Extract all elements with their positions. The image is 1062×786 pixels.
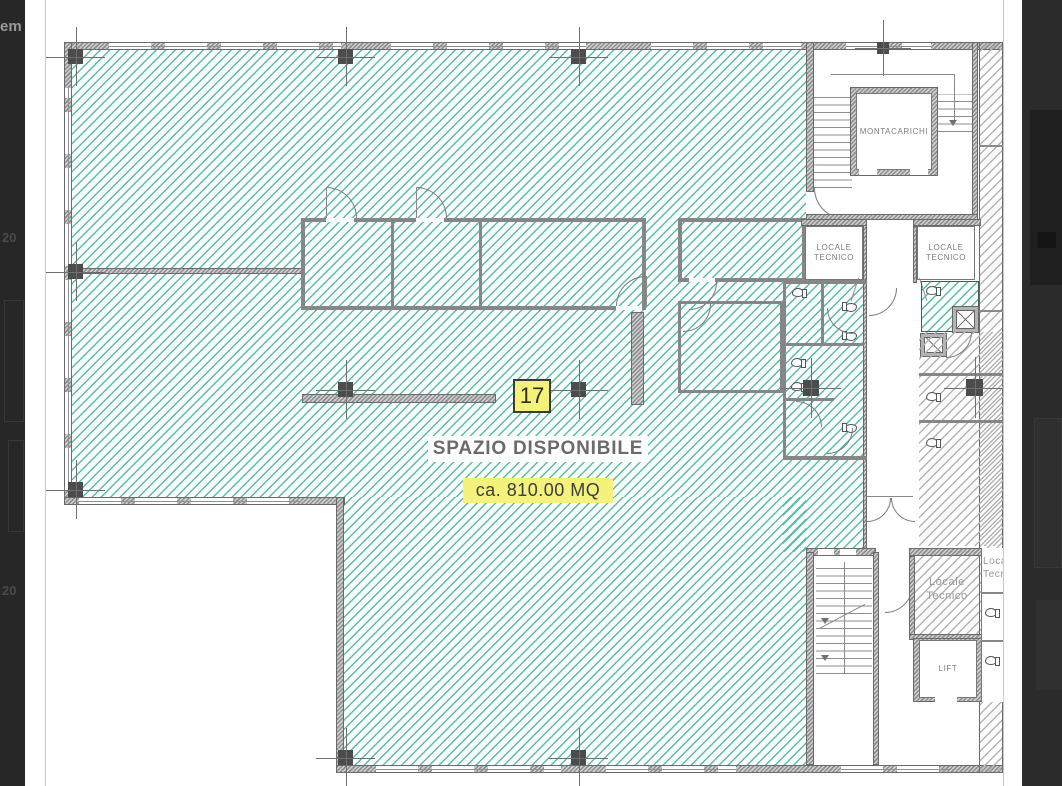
column-marker <box>803 380 819 396</box>
lift-door-gap <box>935 696 957 702</box>
wall <box>391 222 394 308</box>
available-area-hatch <box>344 497 806 765</box>
column-marker <box>571 750 586 765</box>
wall <box>873 552 879 765</box>
door-opening <box>818 549 834 555</box>
window-band <box>391 43 586 49</box>
shaft-icon <box>953 307 978 332</box>
window-band <box>841 766 951 772</box>
room-label-locale-tecnico-lower: Locale Tecnico <box>915 576 979 604</box>
door-opening <box>616 306 642 310</box>
dimmed-page-right[interactable] <box>1022 0 1062 786</box>
wall <box>336 497 344 773</box>
toilet-icon <box>791 358 803 367</box>
wall-joint <box>979 310 1003 312</box>
wall <box>909 548 983 556</box>
wall <box>786 398 834 401</box>
stair-guide-line <box>831 74 955 75</box>
stair-treads <box>814 94 852 188</box>
window-band <box>79 498 299 504</box>
stair-arrow-icon <box>821 618 829 624</box>
window-band <box>376 766 561 772</box>
unit-number-badge: 17 <box>513 379 551 413</box>
background-number-fragment: 20 <box>2 583 16 598</box>
background-image-ghost <box>1030 110 1062 285</box>
wall <box>301 218 305 310</box>
column-marker <box>877 42 889 54</box>
column-marker <box>571 49 586 64</box>
wall <box>981 592 1003 594</box>
room-label-locale-tecnico: LOCALE TECNICO <box>918 243 974 263</box>
wall <box>783 456 867 460</box>
window-band <box>65 88 71 490</box>
door-leaf <box>326 187 327 218</box>
stair-arrow-icon <box>949 120 957 126</box>
background-plan-ghost <box>4 300 24 422</box>
stair-arrow-icon <box>821 655 829 661</box>
room-label-montacarichi: MONTACARICHI <box>860 127 928 137</box>
door-arc <box>867 498 891 522</box>
wall <box>786 343 864 346</box>
column-marker <box>571 382 586 397</box>
window-band <box>109 43 341 49</box>
door-arc <box>869 288 897 316</box>
wall <box>806 42 814 192</box>
wall <box>678 218 682 282</box>
column-marker <box>338 49 353 64</box>
background-badge-ghost <box>1038 232 1056 248</box>
wall <box>479 222 482 308</box>
elevator-door-gap <box>910 169 928 175</box>
column-marker <box>966 379 983 396</box>
door-opening <box>326 218 354 222</box>
door-leaf <box>416 187 417 218</box>
toilet-icon <box>985 608 997 617</box>
wall <box>801 219 867 226</box>
window-band <box>651 43 801 49</box>
wall <box>919 420 1003 423</box>
room-montacarichi: MONTACARICHI <box>856 93 932 170</box>
wall-pier <box>631 312 644 405</box>
column-marker <box>68 264 83 279</box>
wall <box>919 373 1003 376</box>
dimmed-page-left[interactable]: em 20 20 <box>0 0 25 786</box>
toilet-icon <box>791 382 803 391</box>
wall <box>679 218 806 222</box>
column-marker <box>68 482 83 497</box>
room-locale-tecnico-right: LOCALE TECNICO <box>917 226 975 280</box>
door-leaf <box>646 276 647 306</box>
room-label-locale-tecnico: LOCALE TECNICO <box>806 243 862 263</box>
door-opening <box>840 549 856 555</box>
stair-treads <box>937 94 977 132</box>
wall <box>301 306 646 310</box>
wall-joint <box>979 145 1003 147</box>
toilet-icon <box>985 656 997 665</box>
column-marker <box>338 750 353 765</box>
background-panel-ghost <box>1034 418 1062 568</box>
door-arc <box>891 498 915 522</box>
wall <box>783 280 867 284</box>
column-marker <box>68 49 83 64</box>
background-plan-ghost <box>8 440 24 532</box>
wall <box>981 640 1003 642</box>
door-threshold <box>867 496 913 497</box>
wall <box>806 552 814 765</box>
stair-guide-line <box>954 74 955 121</box>
wall <box>821 283 824 343</box>
background-text-fragment: em <box>0 18 22 35</box>
stair-divider <box>844 562 845 674</box>
toilet-icon <box>792 288 804 297</box>
column-marker <box>338 382 353 397</box>
lightbox-panel: MONTACARICHI LOCALE TECNICO LOCALE TECNI… <box>25 0 1022 786</box>
background-panel-ghost <box>1036 600 1062 690</box>
room-label-locale-tecnico-edge: Locale Tecnico <box>983 556 1003 586</box>
room-locale-tecnico-left: LOCALE TECNICO <box>805 226 863 280</box>
toilet-icon <box>926 392 938 401</box>
lightbox-stage: em 20 20 <box>0 0 1062 786</box>
wall <box>783 280 786 460</box>
availability-area: ca. 810.00 MQ <box>463 478 613 503</box>
wall <box>678 390 783 393</box>
background-number-fragment: 20 <box>2 230 16 245</box>
door-opening <box>416 218 444 222</box>
toilet-icon <box>926 286 938 295</box>
elevator-door-gap <box>859 169 877 175</box>
wall <box>913 219 981 226</box>
window-band <box>606 766 736 772</box>
low-wall <box>302 394 496 403</box>
room-lift: LIFT <box>919 640 977 698</box>
toilet-icon <box>926 438 938 447</box>
wall <box>972 42 978 218</box>
wall <box>72 268 302 274</box>
wall <box>678 301 681 393</box>
floor-plan-image[interactable]: MONTACARICHI LOCALE TECNICO LOCALE TECNI… <box>45 0 1004 786</box>
room-label-lift: LIFT <box>939 664 958 674</box>
availability-title: SPAZIO DISPONIBILE <box>428 436 648 462</box>
